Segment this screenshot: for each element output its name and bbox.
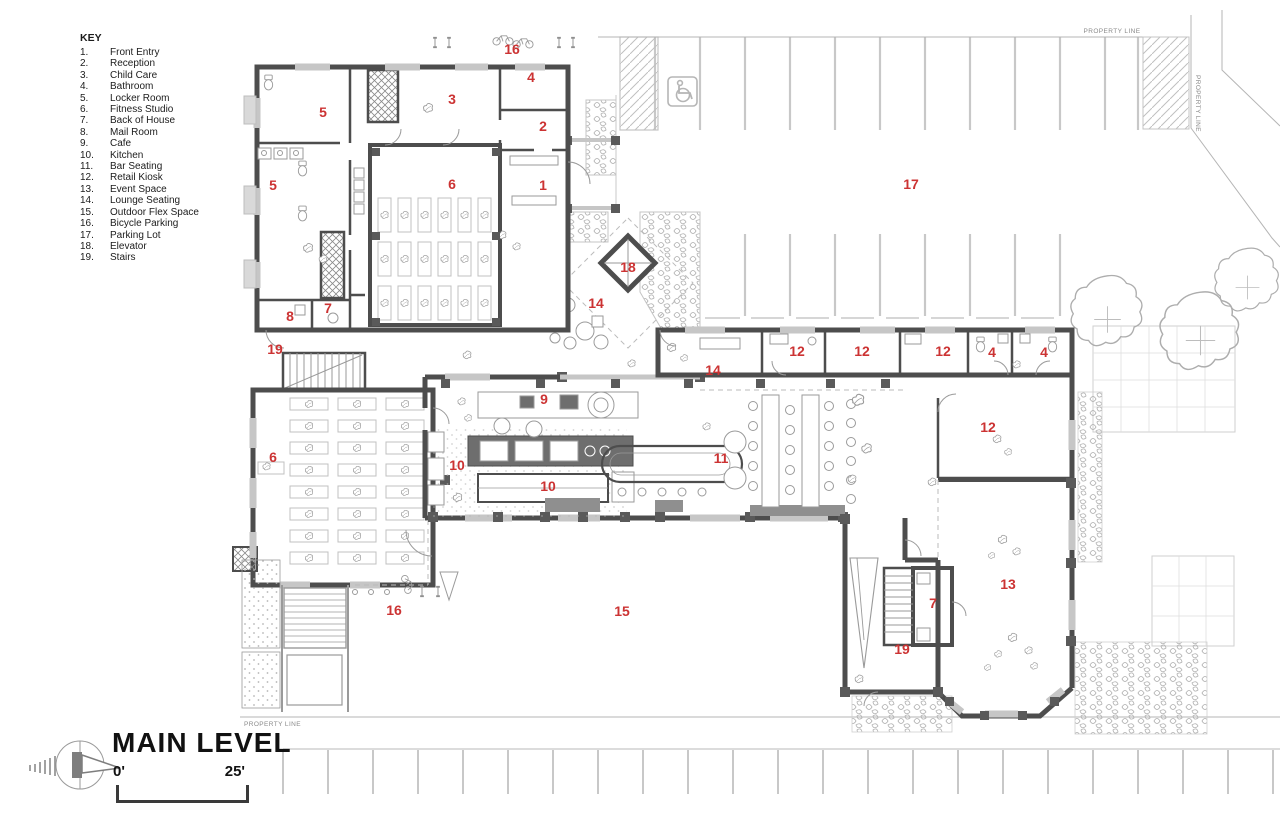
- plan-number-label-17: 17: [903, 176, 919, 192]
- bike-rack-icon: [447, 38, 451, 47]
- plan-number-label-6: 6: [448, 176, 456, 192]
- key-item: 6.Fitness Studio: [80, 104, 199, 115]
- key-item-number: 15.: [80, 207, 110, 218]
- key-item: 13.Event Space: [80, 184, 199, 195]
- key-item-number: 9.: [80, 138, 110, 149]
- plan-number-label-19: 19: [267, 341, 283, 357]
- plan-number-label-8: 8: [286, 308, 294, 324]
- key-legend: KEY 1.Front Entry2.Reception3.Child Care…: [80, 32, 199, 264]
- key-item: 15.Outdoor Flex Space: [80, 207, 199, 218]
- plan-number-label-14: 14: [705, 362, 721, 378]
- scale-end: 25': [225, 763, 245, 780]
- key-item-number: 10.: [80, 150, 110, 161]
- plan-number-label-3: 3: [448, 91, 456, 107]
- key-item-label: Bathroom: [110, 81, 153, 92]
- key-item: 16.Bicycle Parking: [80, 218, 199, 229]
- key-item: 5.Locker Room: [80, 93, 199, 104]
- plan-number-label-12: 12: [854, 343, 870, 359]
- key-item-number: 12.: [80, 172, 110, 183]
- key-item-label: Parking Lot: [110, 230, 161, 241]
- landscape-right: [852, 248, 1278, 734]
- parking-lot-bottom: [283, 749, 1280, 794]
- key-item-label: Back of House: [110, 115, 175, 126]
- key-item-label: Child Care: [110, 70, 157, 81]
- key-item-label: Stairs: [110, 252, 136, 263]
- plan-number-label-19: 19: [894, 641, 910, 657]
- property-line-label: PROPERTY LINE: [1084, 28, 1141, 35]
- bike-rack-icon: [436, 587, 440, 596]
- key-item: 19.Stairs: [80, 252, 199, 263]
- key-item-label: Front Entry: [110, 47, 159, 58]
- plan-number-label-10: 10: [449, 457, 465, 473]
- title-block: MAIN LEVEL 0' 25': [0, 725, 330, 825]
- plan-number-label-7: 7: [324, 300, 332, 316]
- key-item-label: Mail Room: [110, 127, 158, 138]
- tree-icon: [1160, 292, 1239, 370]
- key-item-label: Reception: [110, 58, 155, 69]
- central-band-walls: [355, 377, 938, 692]
- key-item: 3.Child Care: [80, 70, 199, 81]
- key-item-label: Locker Room: [110, 93, 169, 104]
- key-item: 7.Back of House: [80, 115, 199, 126]
- key-item-label: Lounge Seating: [110, 195, 180, 206]
- key-item-label: Kitchen: [110, 150, 143, 161]
- floor-plan-sheet: 1234445566778910101112121212131414151616…: [0, 0, 1280, 828]
- key-item-number: 19.: [80, 252, 110, 263]
- bike-rack-icon: [571, 38, 575, 47]
- plan-number-label-4: 4: [527, 69, 535, 85]
- east-wing-posts: [840, 478, 1076, 720]
- plan-number-label-9: 9: [540, 391, 548, 407]
- key-item-number: 8.: [80, 127, 110, 138]
- plan-number-label-16: 16: [504, 41, 520, 57]
- key-item: 12.Retail Kiosk: [80, 172, 199, 183]
- plan-number-label-4: 4: [988, 344, 996, 360]
- scale-labels: 0' 25': [113, 763, 245, 780]
- plan-number-label-1: 1: [539, 177, 547, 193]
- key-item-number: 13.: [80, 184, 110, 195]
- key-item: 1.Front Entry: [80, 47, 199, 58]
- property-line-label: PROPERTY LINE: [1194, 75, 1201, 132]
- plan-number-label-6: 6: [269, 449, 277, 465]
- key-item-label: Bicycle Parking: [110, 218, 178, 229]
- key-item-number: 18.: [80, 241, 110, 252]
- plan-number-label-12: 12: [789, 343, 805, 359]
- key-item-number: 16.: [80, 218, 110, 229]
- tree-icon: [1071, 275, 1142, 345]
- key-item-number: 2.: [80, 58, 110, 69]
- key-item-label: Outdoor Flex Space: [110, 207, 199, 218]
- scale-bar: [116, 785, 249, 803]
- plan-number-label-12: 12: [935, 343, 951, 359]
- key-item-number: 6.: [80, 104, 110, 115]
- plan-number-label-16: 16: [386, 602, 402, 618]
- bike-rack-icon: [433, 38, 437, 47]
- key-item: 2.Reception: [80, 58, 199, 69]
- back-of-house-fixtures: [917, 573, 930, 641]
- key-item-label: Bar Seating: [110, 161, 162, 172]
- plan-number-label-14: 14: [588, 295, 604, 311]
- key-item-number: 11.: [80, 161, 110, 172]
- key-item: 8.Mail Room: [80, 127, 199, 138]
- key-item-number: 17.: [80, 230, 110, 241]
- plan-number-label-4: 4: [1040, 344, 1048, 360]
- plan-number-label-5: 5: [269, 177, 277, 193]
- bike-rack-icon: [557, 38, 561, 47]
- plan-number-label-5: 5: [319, 104, 327, 120]
- key-item: 18.Elevator: [80, 241, 199, 252]
- plan-number-label-7: 7: [929, 595, 937, 611]
- plan-number-label-10: 10: [540, 478, 556, 494]
- key-item-number: 1.: [80, 47, 110, 58]
- key-heading: KEY: [80, 32, 199, 44]
- east-wing-walls: [884, 375, 1072, 716]
- key-item: 11.Bar Seating: [80, 161, 199, 172]
- key-item-label: Retail Kiosk: [110, 172, 163, 183]
- key-list: 1.Front Entry2.Reception3.Child Care4.Ba…: [80, 47, 199, 264]
- key-item-number: 3.: [80, 70, 110, 81]
- key-item: 10.Kitchen: [80, 150, 199, 161]
- key-item-label: Event Space: [110, 184, 167, 195]
- stairs-northwest: [283, 353, 365, 389]
- key-item-number: 7.: [80, 115, 110, 126]
- key-item: 4.Bathroom: [80, 81, 199, 92]
- accessible-parking-icon: [668, 77, 697, 106]
- bike-rack-icon: [420, 587, 424, 596]
- plan-number-label-18: 18: [620, 259, 636, 275]
- key-item-label: Fitness Studio: [110, 104, 173, 115]
- key-item-number: 14.: [80, 195, 110, 206]
- plan-title: MAIN LEVEL: [112, 727, 292, 759]
- key-item-label: Cafe: [110, 138, 131, 149]
- key-item-label: Elevator: [110, 241, 147, 252]
- key-item: 9.Cafe: [80, 138, 199, 149]
- plan-number-label-2: 2: [539, 118, 547, 134]
- plan-number-label-12: 12: [980, 419, 996, 435]
- key-item-number: 4.: [80, 81, 110, 92]
- key-item: 17.Parking Lot: [80, 230, 199, 241]
- plan-number-label-11: 11: [714, 450, 729, 466]
- plan-number-label-15: 15: [614, 603, 630, 619]
- key-item: 14.Lounge Seating: [80, 195, 199, 206]
- east-wing-windows: [947, 420, 1072, 714]
- plan-number-label-13: 13: [1000, 576, 1016, 592]
- key-item-number: 5.: [80, 93, 110, 104]
- scale-start: 0': [113, 763, 125, 780]
